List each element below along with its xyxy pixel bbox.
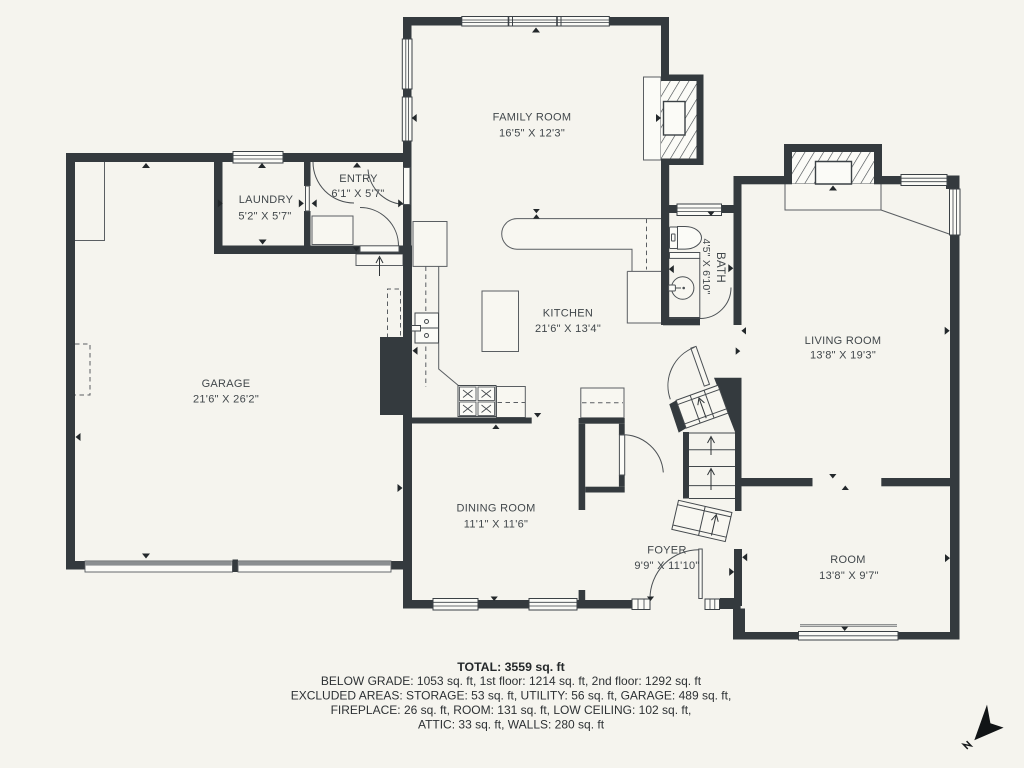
svg-text:TOTAL: 3559 sq. ft: TOTAL: 3559 sq. ft [457, 660, 565, 674]
svg-text:21'6" X 26'2": 21'6" X 26'2" [193, 394, 259, 406]
svg-text:16'5" X 12'3": 16'5" X 12'3" [499, 127, 565, 139]
svg-text:FOYER: FOYER [647, 545, 686, 557]
svg-text:FAMILY ROOM: FAMILY ROOM [493, 112, 572, 124]
svg-text:ROOM: ROOM [830, 554, 865, 566]
svg-text:KITCHEN: KITCHEN [543, 308, 593, 320]
svg-text:ATTIC: 33 sq. ft, WALLS: 280 s: ATTIC: 33 sq. ft, WALLS: 280 sq. ft [418, 718, 605, 732]
svg-text:GARAGE: GARAGE [202, 378, 251, 390]
svg-text:FIREPLACE: 26 sq. ft, ROOM: 13: FIREPLACE: 26 sq. ft, ROOM: 131 sq. ft, … [331, 703, 692, 717]
svg-text:5'2" X 5'7": 5'2" X 5'7" [238, 211, 291, 223]
svg-text:13'8" X 19'3": 13'8" X 19'3" [810, 350, 876, 362]
svg-text:LIVING ROOM: LIVING ROOM [805, 335, 882, 347]
svg-text:6'1" X 5'7": 6'1" X 5'7" [331, 188, 384, 200]
svg-text:11'1" X 11'6": 11'1" X 11'6" [464, 519, 528, 531]
svg-text:DINING ROOM: DINING ROOM [456, 503, 535, 515]
svg-text:EXCLUDED AREAS: STORAGE: 53 sq: EXCLUDED AREAS: STORAGE: 53 sq. ft, UTIL… [291, 689, 732, 703]
svg-text:21'6" X 13'4": 21'6" X 13'4" [535, 323, 601, 335]
svg-text:9'9" X 11'10": 9'9" X 11'10" [634, 560, 699, 572]
svg-text:BELOW GRADE: 1053 sq. ft, 1st: BELOW GRADE: 1053 sq. ft, 1st floor: 121… [321, 674, 702, 688]
svg-text:4'5" X 6'10": 4'5" X 6'10" [700, 238, 711, 294]
svg-text:LAUNDRY: LAUNDRY [239, 194, 294, 206]
svg-text:ENTRY: ENTRY [339, 173, 378, 185]
svg-text:13'8" X 9'7": 13'8" X 9'7" [819, 570, 879, 582]
svg-text:BATH: BATH [714, 252, 726, 283]
